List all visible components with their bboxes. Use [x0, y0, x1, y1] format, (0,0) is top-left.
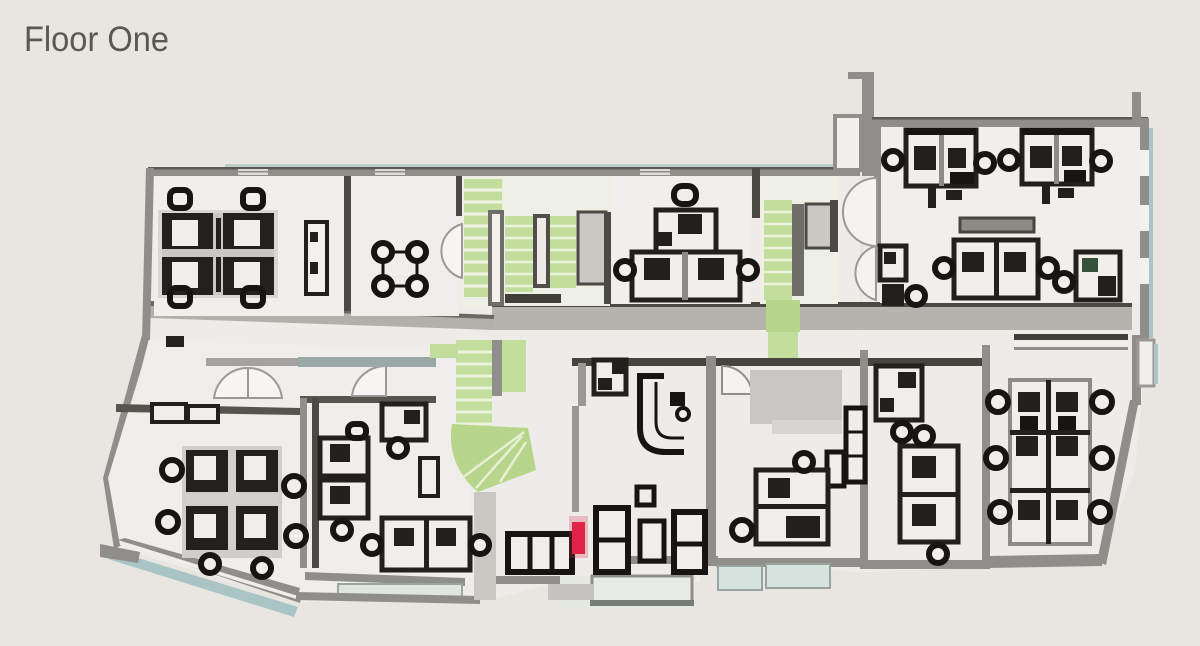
svg-text:Floor One: Floor One: [24, 20, 169, 59]
